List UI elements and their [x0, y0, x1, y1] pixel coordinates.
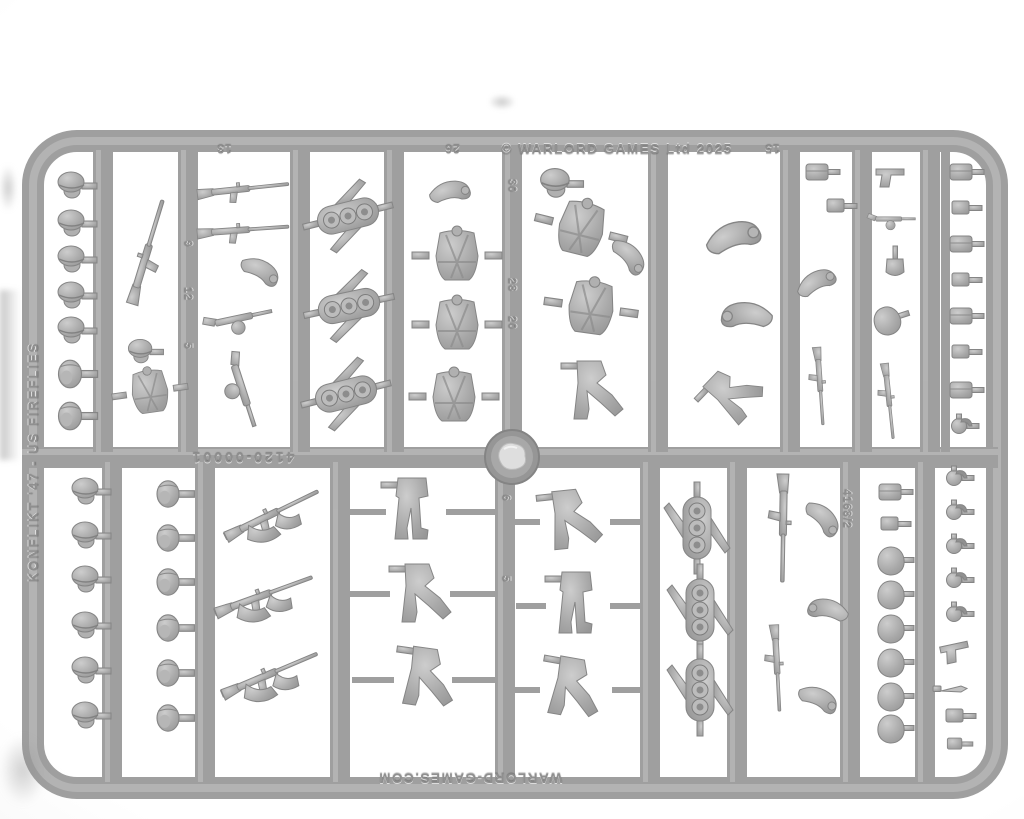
kit-box-part: [952, 201, 982, 214]
limbs-cell: [693, 213, 774, 434]
head-bare-part: [157, 705, 194, 731]
head-helmet-part: [58, 246, 97, 272]
rocket-pack-part: [664, 482, 730, 574]
head-helmet-part: [58, 172, 97, 198]
grenade-part: [947, 568, 975, 588]
pouch-part: [878, 649, 914, 677]
part-number: 20: [506, 316, 518, 330]
smg-cell: [197, 177, 290, 431]
rifle-part: [807, 347, 829, 426]
head-helmet-part: [128, 339, 163, 362]
grenade-part: [947, 500, 975, 520]
pouch-part: [878, 547, 914, 575]
part-number: 5: [182, 342, 194, 349]
part-number: 26: [444, 142, 459, 156]
pistol-part: [876, 169, 904, 187]
torso-part: [409, 367, 499, 421]
smg-part: [213, 349, 262, 431]
kit-box-part: [947, 738, 973, 749]
part-number: 30: [506, 179, 518, 193]
mould-code: 4168/2: [841, 489, 853, 529]
shovel-part: [886, 246, 904, 276]
rocket-pack-part: [667, 564, 733, 656]
grenade-part: [952, 414, 980, 434]
legs-part: [536, 487, 604, 551]
part-number: 12: [182, 287, 194, 301]
kit-box-part: [946, 709, 976, 722]
arms-with-weapon-part: [222, 485, 328, 558]
holster-part: [870, 301, 913, 339]
rocket-pack-cell-bottom: [664, 482, 733, 736]
legs-part: [381, 478, 428, 539]
head-bare-part: [59, 402, 98, 430]
head-helmet-part: [58, 210, 97, 236]
pouch-part: [806, 164, 840, 180]
arm-part: [796, 684, 840, 715]
part-code: 4120-00001: [190, 450, 295, 466]
rifle-part: [124, 198, 178, 308]
pouch-part: [950, 382, 984, 398]
pouch-cell-bottom: [878, 484, 914, 743]
grenade-part: [947, 534, 975, 554]
copyright-text: © WARLORD GAMES Ltd 2025: [501, 142, 732, 157]
pouch-part: [950, 164, 984, 180]
injection-gate: [485, 430, 539, 484]
bits-ladder-top: [950, 164, 984, 434]
part-number: 5: [500, 575, 512, 582]
legs-part: [693, 357, 769, 433]
pouch-part: [950, 308, 984, 324]
rifle-part: [763, 625, 786, 712]
arm-part: [793, 262, 838, 304]
product-label: KONFLIKT '47 - US FIREFLIES: [26, 342, 41, 583]
head-bare-part: [157, 481, 194, 507]
kit-cell-top: [793, 164, 857, 426]
head-bare-part: [157, 615, 194, 641]
website-text: WARLORD-GAMES.COM: [378, 771, 563, 786]
head-bare-part: [157, 569, 194, 595]
top-left-heads: [58, 172, 98, 430]
head-bare-part: [59, 360, 98, 388]
head-bare-part: [157, 525, 194, 551]
head-bare-part: [157, 660, 194, 686]
smg-part: [867, 213, 915, 229]
knife-part: [933, 686, 967, 692]
head-helmet-part: [58, 317, 97, 343]
sidearm-cell: [867, 169, 915, 440]
torso-part: [412, 226, 502, 280]
pouch-part: [950, 236, 984, 252]
arm-part: [427, 176, 472, 210]
part-number: 6: [500, 494, 512, 501]
legs-part: [545, 572, 592, 633]
rocket-pack-part: [667, 644, 733, 736]
kit-box-part: [952, 345, 982, 358]
torso-part: [541, 270, 642, 339]
rifle-part: [875, 363, 899, 440]
grenade-part: [947, 602, 975, 622]
head-helmet-part: [541, 169, 584, 198]
legs-part: [390, 644, 459, 710]
arms-with-weapon-part: [219, 647, 326, 716]
figure-cell: [529, 169, 650, 419]
arm-part: [702, 213, 763, 265]
arms-with-weapon-part: [213, 570, 321, 634]
kit-box-part: [952, 273, 982, 286]
rifle-part: [197, 177, 290, 206]
arm-part: [720, 298, 774, 336]
pouch-part: [879, 484, 913, 500]
pouch-part: [878, 715, 914, 743]
grenade-part: [947, 466, 975, 486]
legs-part: [389, 564, 451, 622]
smg-part: [201, 303, 275, 341]
pouch-part: [878, 615, 914, 643]
rifle-part: [767, 474, 792, 582]
pouch-part: [878, 581, 914, 609]
rifle-cell-bottom: [763, 474, 851, 715]
arms-weapons-cell: [213, 485, 329, 716]
sprue-frame-graphic: [0, 0, 1024, 819]
torso-cell: [409, 176, 502, 421]
rifle-part: [197, 220, 290, 246]
part-number: 15: [764, 142, 779, 156]
head-helmet-part: [58, 282, 97, 308]
torso-part: [412, 295, 502, 349]
part-number: 9: [182, 240, 194, 247]
kit-box-part: [881, 517, 911, 530]
pouch-part: [878, 683, 914, 711]
arm-part: [606, 235, 651, 277]
pistol-part: [940, 641, 971, 664]
arm-part: [237, 254, 282, 287]
part-number: 13: [216, 142, 231, 156]
part-number: 28: [506, 278, 518, 292]
grenade-cell: [933, 466, 976, 749]
sprue-photo: © WARLORD GAMES Ltd 2025 13 26 15 9 12 5…: [0, 0, 1024, 819]
arm-part: [799, 498, 844, 539]
legs-part: [535, 653, 606, 721]
bottom-heads-b: [157, 481, 194, 731]
legs-part: [561, 361, 623, 419]
